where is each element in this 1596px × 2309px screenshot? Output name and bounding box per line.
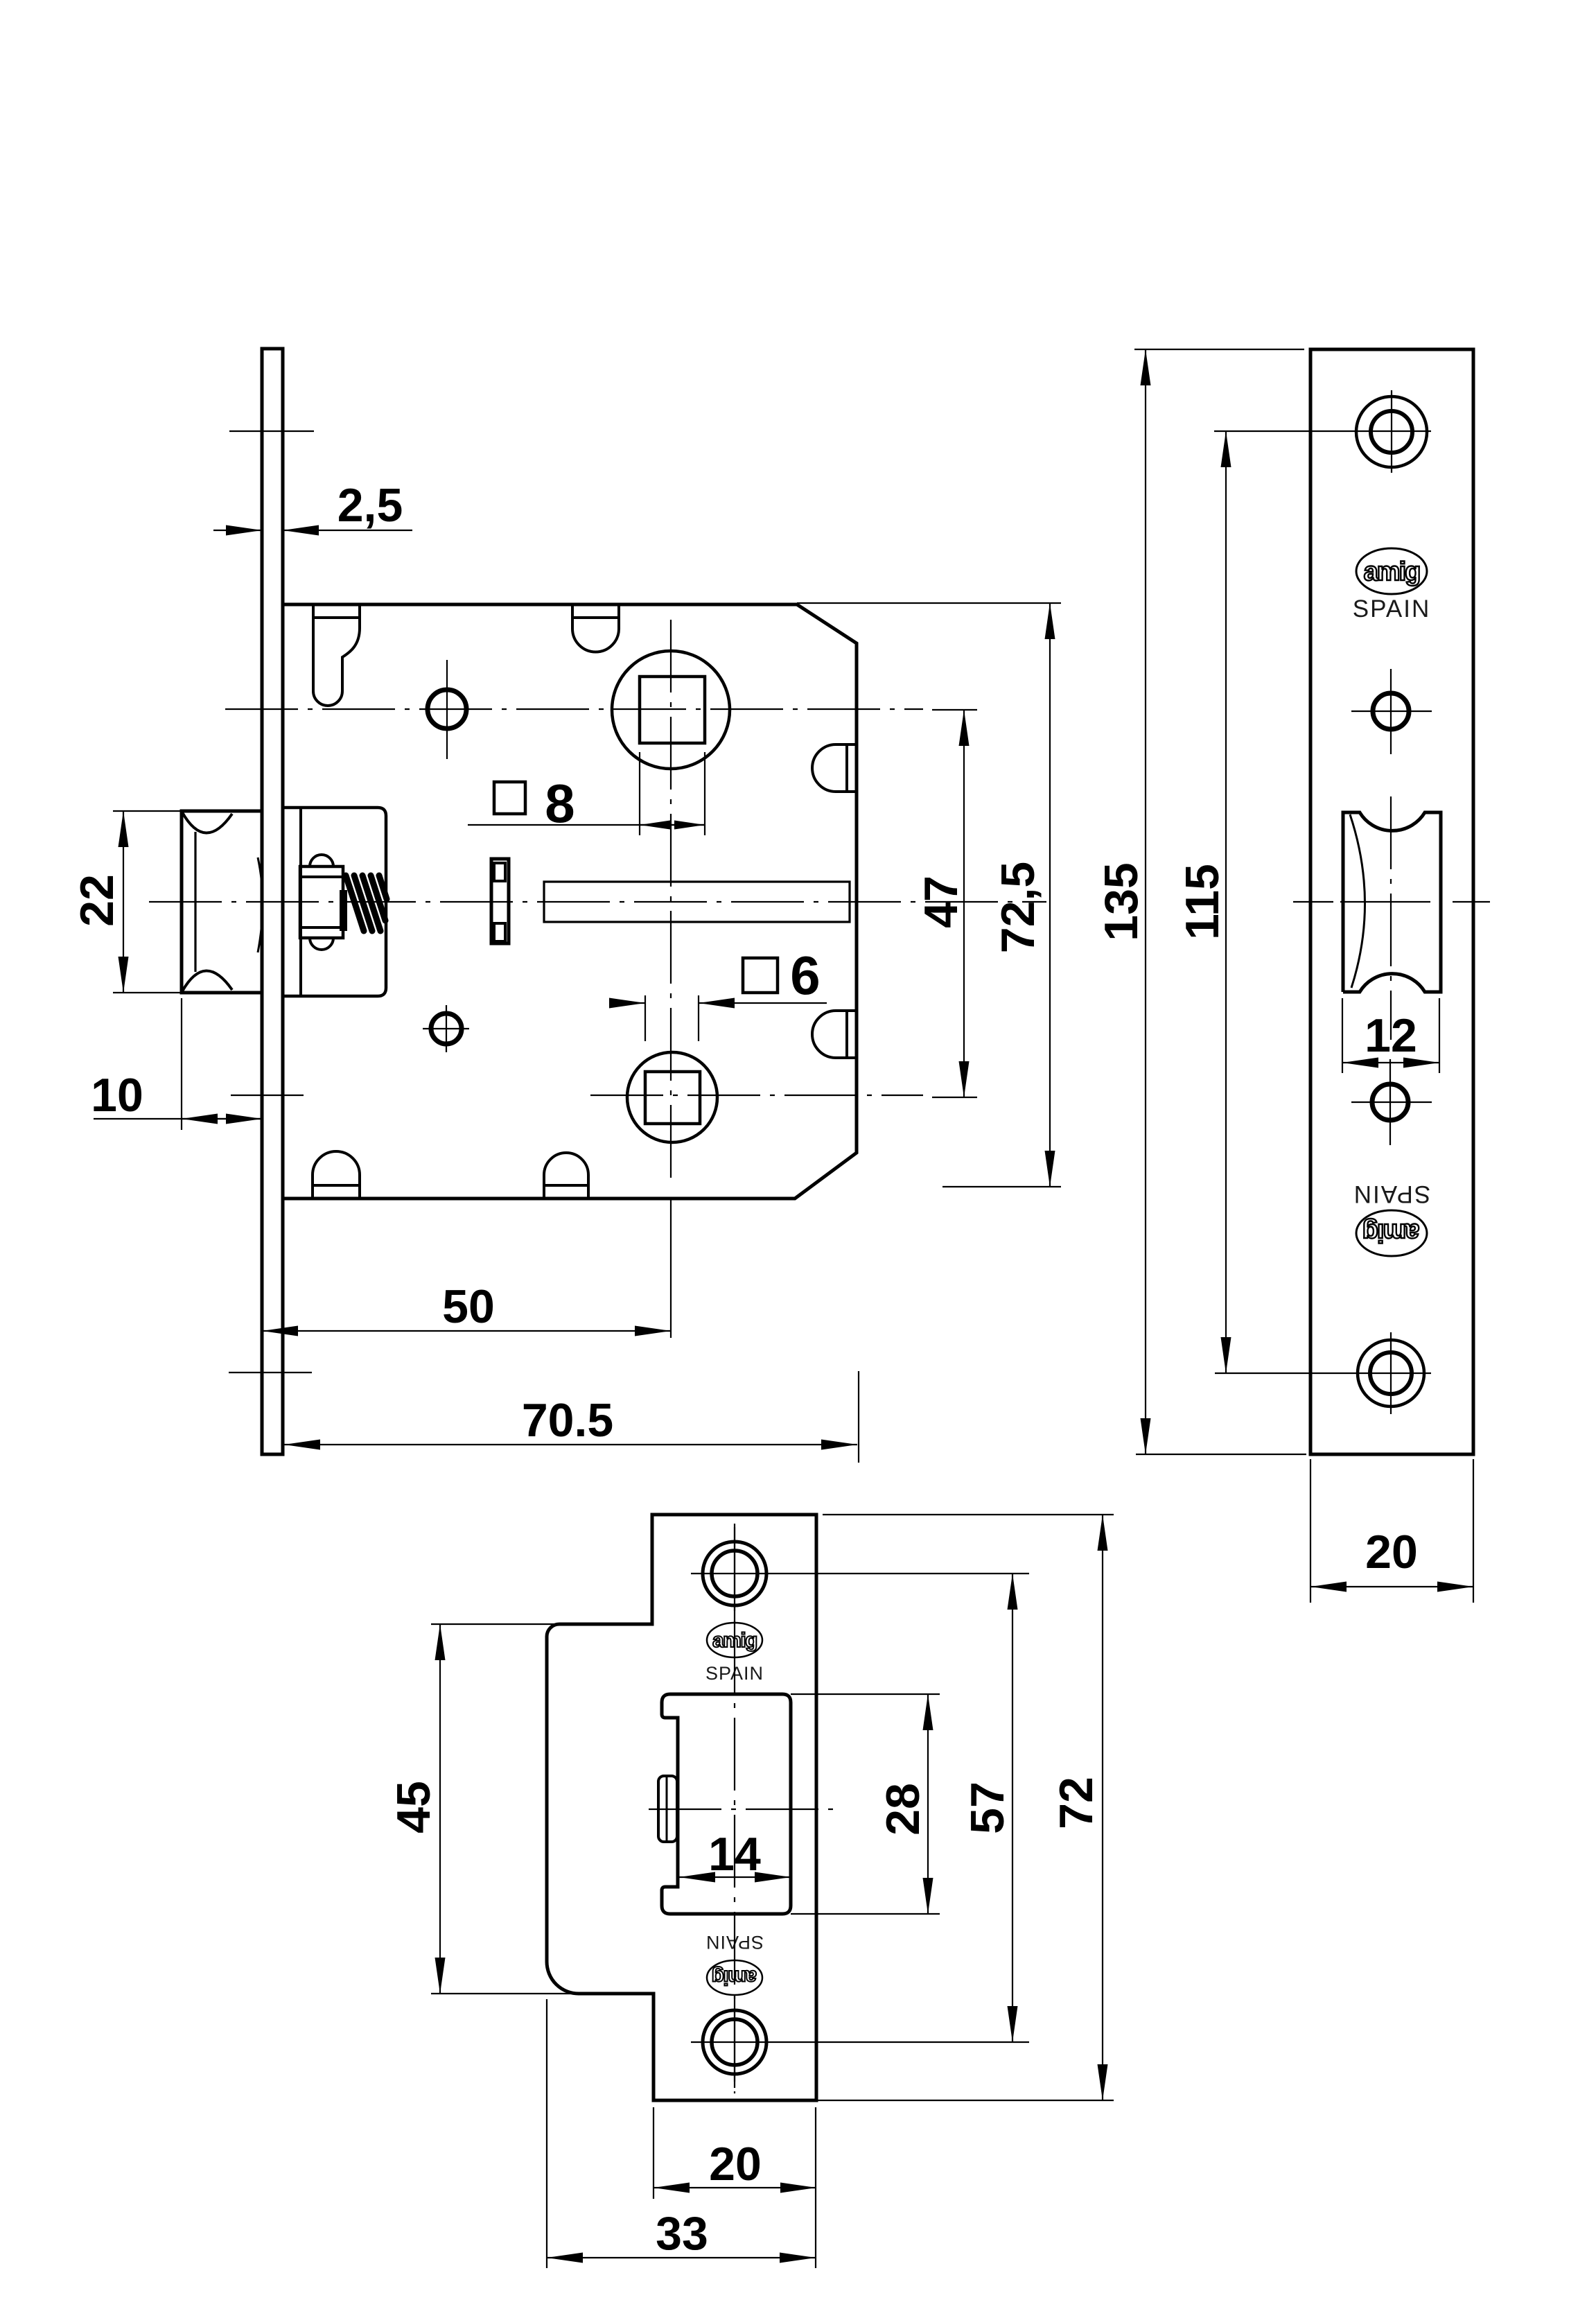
- svg-text:72,5: 72,5: [992, 862, 1044, 953]
- svg-text:22: 22: [71, 874, 123, 927]
- svg-text:14: 14: [708, 1828, 761, 1881]
- svg-text:20: 20: [709, 2138, 762, 2190]
- svg-text:115: 115: [1176, 864, 1229, 940]
- svg-text:10: 10: [91, 1069, 143, 1122]
- svg-text:70.5: 70.5: [522, 1394, 613, 1447]
- svg-text:135: 135: [1095, 862, 1148, 941]
- svg-text:6: 6: [790, 945, 820, 1006]
- svg-text:12: 12: [1365, 1009, 1417, 1062]
- svg-text:SPAIN: SPAIN: [1353, 595, 1430, 622]
- svg-text:amig: amig: [1364, 1218, 1420, 1247]
- svg-text:SPAIN: SPAIN: [1353, 1180, 1430, 1208]
- svg-text:57: 57: [961, 1781, 1014, 1834]
- svg-text:72: 72: [1050, 1777, 1103, 1829]
- svg-text:20: 20: [1365, 1526, 1418, 1578]
- svg-text:50: 50: [442, 1280, 495, 1333]
- svg-text:33: 33: [656, 2207, 708, 2260]
- svg-text:28: 28: [877, 1783, 929, 1836]
- svg-text:45: 45: [387, 1781, 440, 1833]
- svg-text:47: 47: [915, 875, 967, 928]
- svg-text:2,5: 2,5: [337, 479, 403, 532]
- svg-text:amig: amig: [1364, 557, 1420, 586]
